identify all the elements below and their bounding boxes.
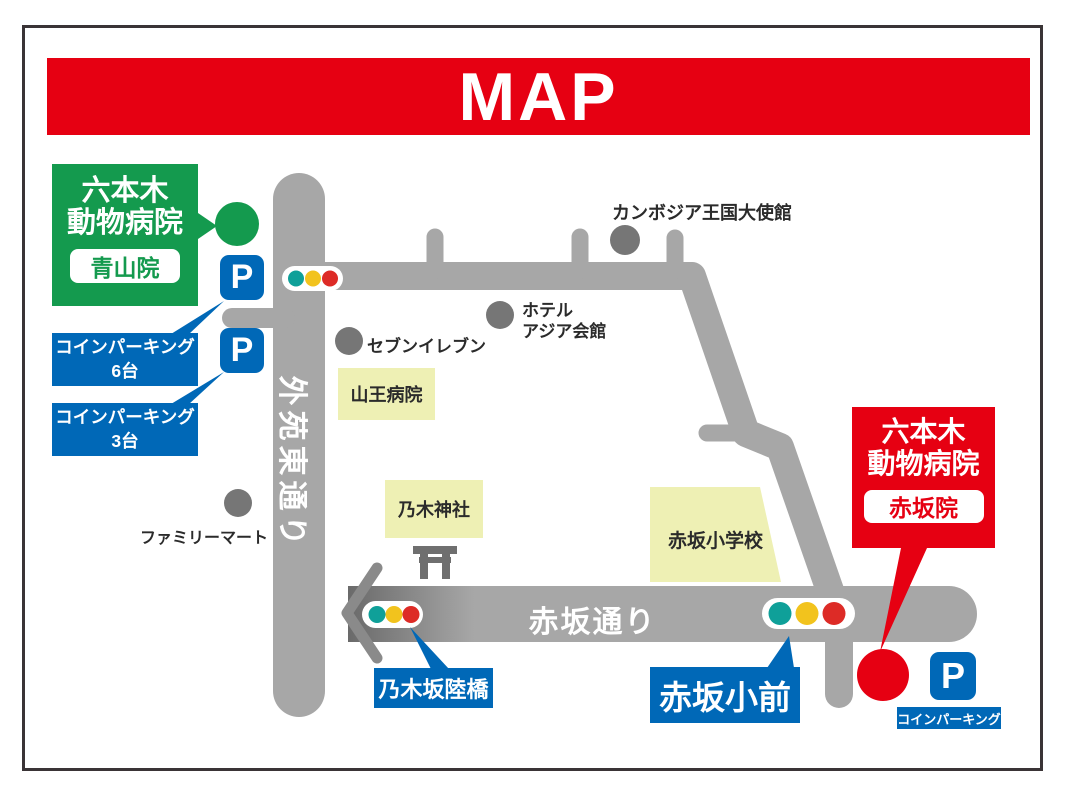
hotel-asia-kaikan-line1: ホテル (522, 300, 606, 321)
akasaka-clinic-marker (857, 649, 909, 701)
akasaka-clinic-box: 六本木 動物病院 赤坂院 (852, 407, 995, 548)
cambodia-embassy-dot (610, 225, 640, 255)
parking-icon-1: P (220, 255, 264, 300)
sanno-hospital-box: 山王病院 (338, 368, 435, 420)
coin-parking-6-line2: 6台 (111, 360, 138, 384)
seven-eleven-label: セブンイレブン (367, 332, 486, 357)
akasaka-elementary-label: 赤坂小学校 (650, 526, 781, 553)
traffic-light-akasaka (762, 598, 855, 629)
hotel-asia-kaikan-dot (486, 301, 514, 329)
family-mart-label: ファミリーマート (140, 524, 266, 548)
coin-parking-6-box: コインパーキング 6台 (52, 333, 198, 386)
akasaka-sho-mae-sign: 赤坂小前 (650, 667, 800, 723)
akasaka-sho-mae-text: 赤坂小前 (659, 671, 791, 719)
hotel-asia-kaikan-label: ホテル アジア会館 (522, 300, 606, 343)
gaien-higashi-road-label: 外苑東通り (283, 368, 317, 558)
coin-parking-6-line1: コインパーキング (55, 336, 194, 360)
aoyama-clinic-marker (215, 202, 259, 246)
parking-icon-3: P (930, 652, 976, 700)
nogi-shrine-label: 乃木神社 (398, 496, 470, 522)
aoyama-box-pointer (198, 213, 217, 239)
akasaka-branch-badge: 赤坂院 (864, 490, 984, 523)
akasaka-clinic-name-line2: 動物病院 (867, 448, 979, 480)
aoyama-clinic-name-line1: 六本木 (81, 175, 168, 207)
hotel-asia-kaikan-line2: アジア会館 (522, 321, 606, 342)
aoyama-clinic-name-line2: 動物病院 (67, 207, 183, 239)
parking-icon-1-letter: P (231, 258, 254, 297)
map-graphics-layer (0, 0, 1065, 801)
coin-parking-akasaka-text: コインパーキング (897, 709, 1001, 728)
cambodia-embassy-label: カンボジア王国大使館 (612, 199, 792, 225)
nogi-shrine-box: 乃木神社 (385, 480, 483, 538)
coin-parking-3-line1: コインパーキング (55, 406, 194, 430)
family-mart-dot (224, 489, 252, 517)
coin-parking-3-box: コインパーキング 3台 (52, 403, 198, 456)
traffic-light-top (282, 266, 343, 291)
akasaka-clinic-name-line1: 六本木 (881, 416, 965, 448)
coin-parking-3-line2: 3台 (111, 430, 138, 454)
map-canvas: MAP (0, 0, 1065, 801)
parking-icon-2-letter: P (231, 331, 254, 370)
torii-gate-icon (413, 546, 457, 579)
seven-eleven-dot (335, 327, 363, 355)
aoyama-clinic-box: 六本木 動物病院 青山院 (52, 164, 198, 306)
nogizaka-bridge-text: 乃木坂陸橋 (378, 672, 488, 704)
sanno-hospital-label: 山王病院 (351, 381, 423, 407)
akasaka-dori-road-label: 赤坂通り (520, 597, 665, 641)
coin-parking-akasaka-label: コインパーキング (897, 707, 1001, 729)
parking-icon-2: P (220, 328, 264, 373)
aoyama-branch-badge: 青山院 (70, 249, 180, 283)
nogizaka-bridge-sign: 乃木坂陸橋 (374, 668, 493, 708)
parking-icon-3-letter: P (941, 655, 965, 697)
traffic-light-nogizaka (362, 601, 423, 628)
